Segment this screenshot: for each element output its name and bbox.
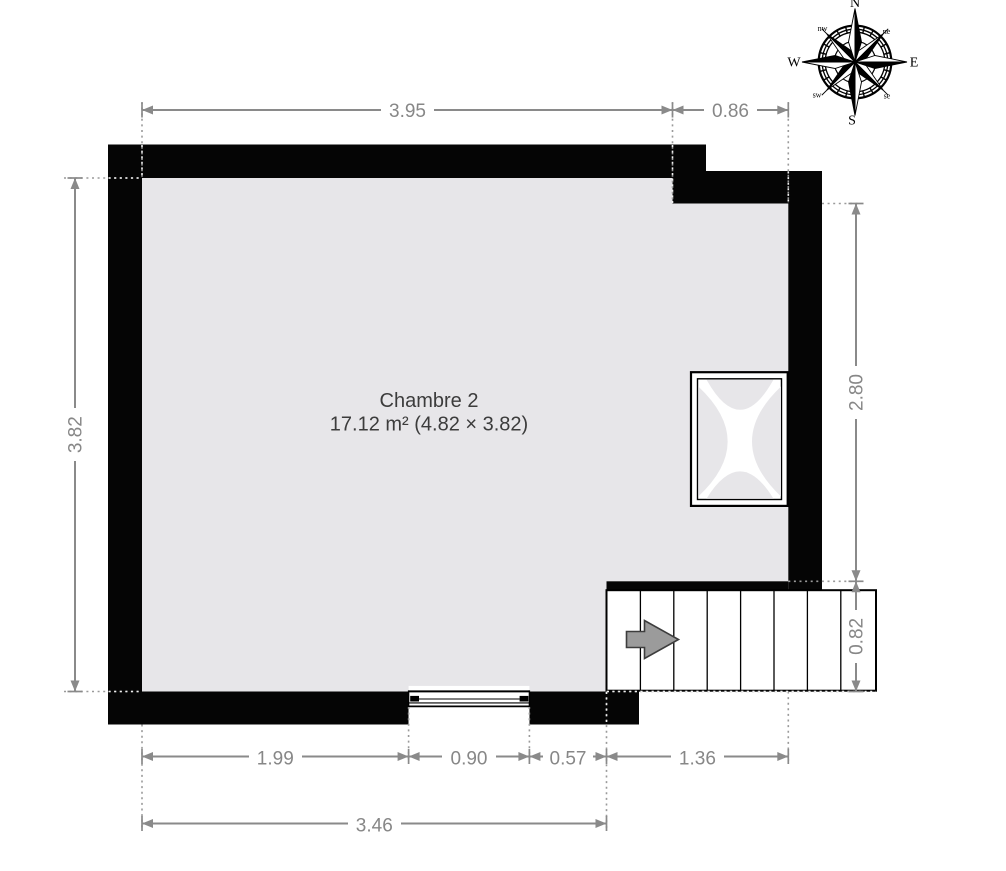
- svg-text:3.95: 3.95: [389, 101, 426, 122]
- svg-text:ne: ne: [883, 27, 891, 36]
- svg-text:0.90: 0.90: [451, 749, 488, 770]
- svg-text:nw: nw: [818, 24, 828, 33]
- svg-text:S: S: [848, 114, 856, 129]
- svg-text:1.36: 1.36: [679, 749, 716, 770]
- svg-text:W: W: [787, 56, 801, 71]
- svg-text:2.80: 2.80: [847, 374, 868, 411]
- svg-text:3.46: 3.46: [356, 816, 393, 837]
- svg-text:17.12 m² (4.82 × 3.82): 17.12 m² (4.82 × 3.82): [330, 414, 528, 436]
- svg-text:0.86: 0.86: [712, 101, 749, 122]
- svg-text:3.82: 3.82: [66, 416, 87, 453]
- svg-text:0.82: 0.82: [847, 618, 868, 655]
- svg-text:E: E: [910, 56, 919, 71]
- svg-text:0.57: 0.57: [550, 749, 587, 770]
- svg-text:se: se: [884, 92, 891, 101]
- svg-text:1.99: 1.99: [257, 749, 294, 770]
- svg-text:sw: sw: [813, 91, 822, 100]
- svg-text:N: N: [850, 0, 860, 11]
- svg-text:Chambre 2: Chambre 2: [380, 390, 479, 412]
